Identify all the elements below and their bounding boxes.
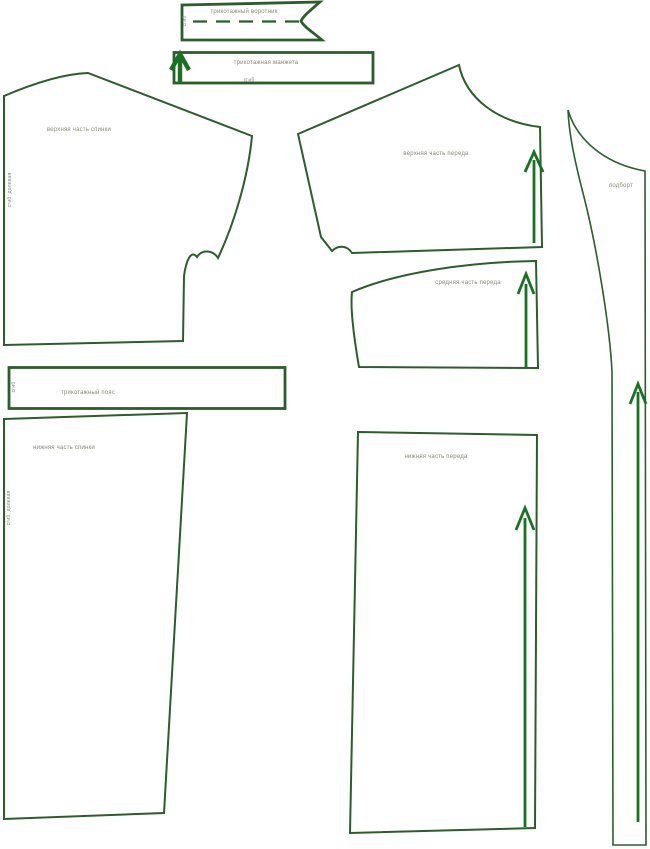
piece-label-upper-back: верхняя часть спинки xyxy=(47,127,111,133)
pattern-diagram: трикотажный воротник сгиб трикотажная ма… xyxy=(0,0,650,849)
piece-label-cuff: трикотажная манжета xyxy=(234,60,299,66)
piece-waistband-group: трикотажный пояс сгиб xyxy=(9,368,285,409)
piece-facing-outline xyxy=(568,110,646,845)
piece-facing-group: подборт xyxy=(568,110,646,845)
piece-upper-front-group: верхняя часть переда xyxy=(298,65,543,253)
piece-waistband-outline xyxy=(9,368,285,409)
piece-lower-front-group: нижняя часть переда xyxy=(350,432,537,833)
collar-fold-label: сгиб xyxy=(182,16,188,27)
sewing-pattern-sheet: трикотажный воротник сгиб трикотажная ма… xyxy=(0,0,650,849)
piece-label-middle-front: средняя часть переда xyxy=(435,280,501,286)
piece-label-collar: трикотажный воротник xyxy=(210,8,277,15)
piece-cuff-group: трикотажная манжета сгиб xyxy=(171,53,373,84)
grainline-arrow-lower-front xyxy=(516,508,534,827)
piece-lower-front-outline xyxy=(350,432,537,833)
piece-label-facing: подборт xyxy=(609,183,633,189)
piece-lower-back-outline xyxy=(4,413,187,819)
piece-label-lower-front: нижняя часть переда xyxy=(405,454,468,460)
piece-middle-front-outline xyxy=(351,261,538,368)
piece-label-upper-front: верхняя часть переда xyxy=(403,151,469,157)
cuff-fold-label: сгиб xyxy=(244,78,255,84)
waistband-fold-label: сгиб xyxy=(11,382,17,393)
piece-label-lower-back: нижняя часть спинки xyxy=(33,445,95,451)
piece-middle-front-group: средняя часть переда xyxy=(351,261,538,368)
piece-label-waistband: трикотажный пояс xyxy=(61,389,115,396)
piece-lower-back-group: нижняя часть спинки сгиб, долевая xyxy=(4,413,187,819)
upper-back-fold-label: сгиб, долевая xyxy=(7,173,13,208)
grainline-arrow-middle-front xyxy=(518,274,534,367)
piece-cuff-outline xyxy=(174,53,373,84)
piece-upper-front-outline xyxy=(298,65,542,253)
grainline-arrow-facing xyxy=(630,384,646,822)
lower-back-fold-label: сгиб, долевая xyxy=(6,491,12,526)
piece-collar-group: трикотажный воротник сгиб xyxy=(182,2,322,40)
piece-upper-back-outline xyxy=(4,73,252,345)
piece-upper-back-group: верхняя часть спинки сгиб, долевая xyxy=(4,73,252,345)
